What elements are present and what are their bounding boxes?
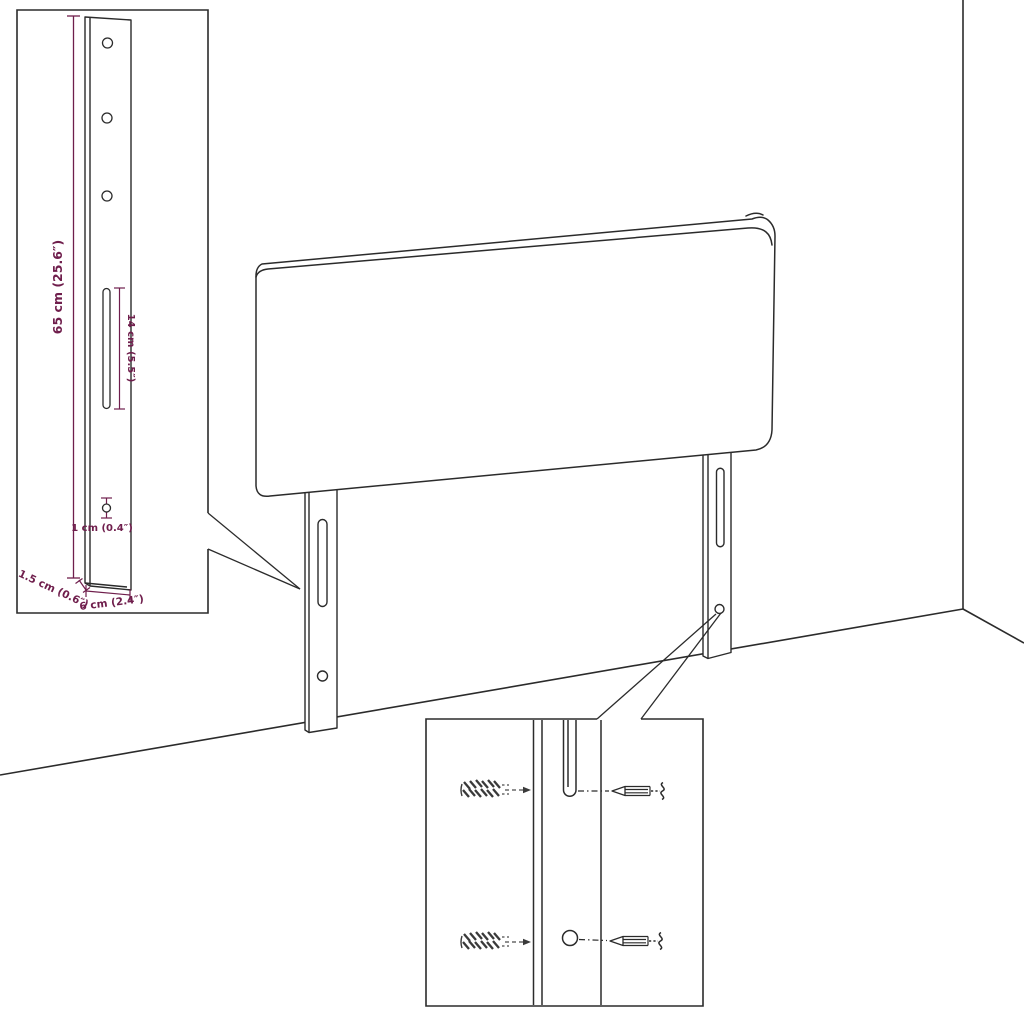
callout-left-inset	[208, 513, 300, 589]
floor-line-left	[0, 609, 963, 775]
left-mounting-strut	[305, 487, 337, 733]
screw-icon	[578, 783, 664, 800]
headboard-top-right-cap	[746, 213, 763, 216]
screw-leader-line	[579, 940, 607, 941]
callout-line	[208, 513, 300, 589]
dim-height-lines	[67, 16, 80, 578]
wall-plug-icon	[461, 932, 531, 949]
inset-border	[426, 719, 703, 1006]
bracket-small-hole	[103, 504, 111, 512]
enlarged-hole	[563, 931, 578, 946]
assembly-diagram: 65 cm (25.6″) 14 cm (5.5″) 1 cm (0.4″) 6…	[0, 0, 1024, 1024]
enlarged-slot	[564, 720, 577, 796]
screw-icon	[579, 933, 662, 950]
wall-plug-icon	[461, 780, 531, 797]
callout-line	[597, 614, 716, 719]
left-leg-body	[305, 487, 337, 733]
plug-arrowhead	[523, 939, 531, 945]
dim-slot-label: 14 cm (5.5″)	[125, 314, 136, 383]
floor-line-right	[963, 609, 1024, 643]
headboard-panel	[256, 213, 775, 496]
dim-height-label: 65 cm (25.6″)	[50, 240, 65, 334]
hardware-detail-inset	[426, 719, 703, 1006]
dim-hole-label: 1 cm (0.4″)	[71, 523, 133, 534]
dim-depth-label: 1.5 cm (0.6″)	[16, 568, 90, 611]
headboard-outline	[256, 217, 775, 496]
callout-line	[208, 549, 300, 589]
plug-arrowhead	[523, 787, 531, 793]
diagram-svg: 65 cm (25.6″) 14 cm (5.5″) 1 cm (0.4″) 6…	[0, 0, 1024, 1024]
callout-line	[641, 613, 721, 719]
enlarged-leg-strip	[534, 720, 602, 1005]
leg-dimension-inset: 65 cm (25.6″) 14 cm (5.5″) 1 cm (0.4″) 6…	[16, 10, 208, 613]
